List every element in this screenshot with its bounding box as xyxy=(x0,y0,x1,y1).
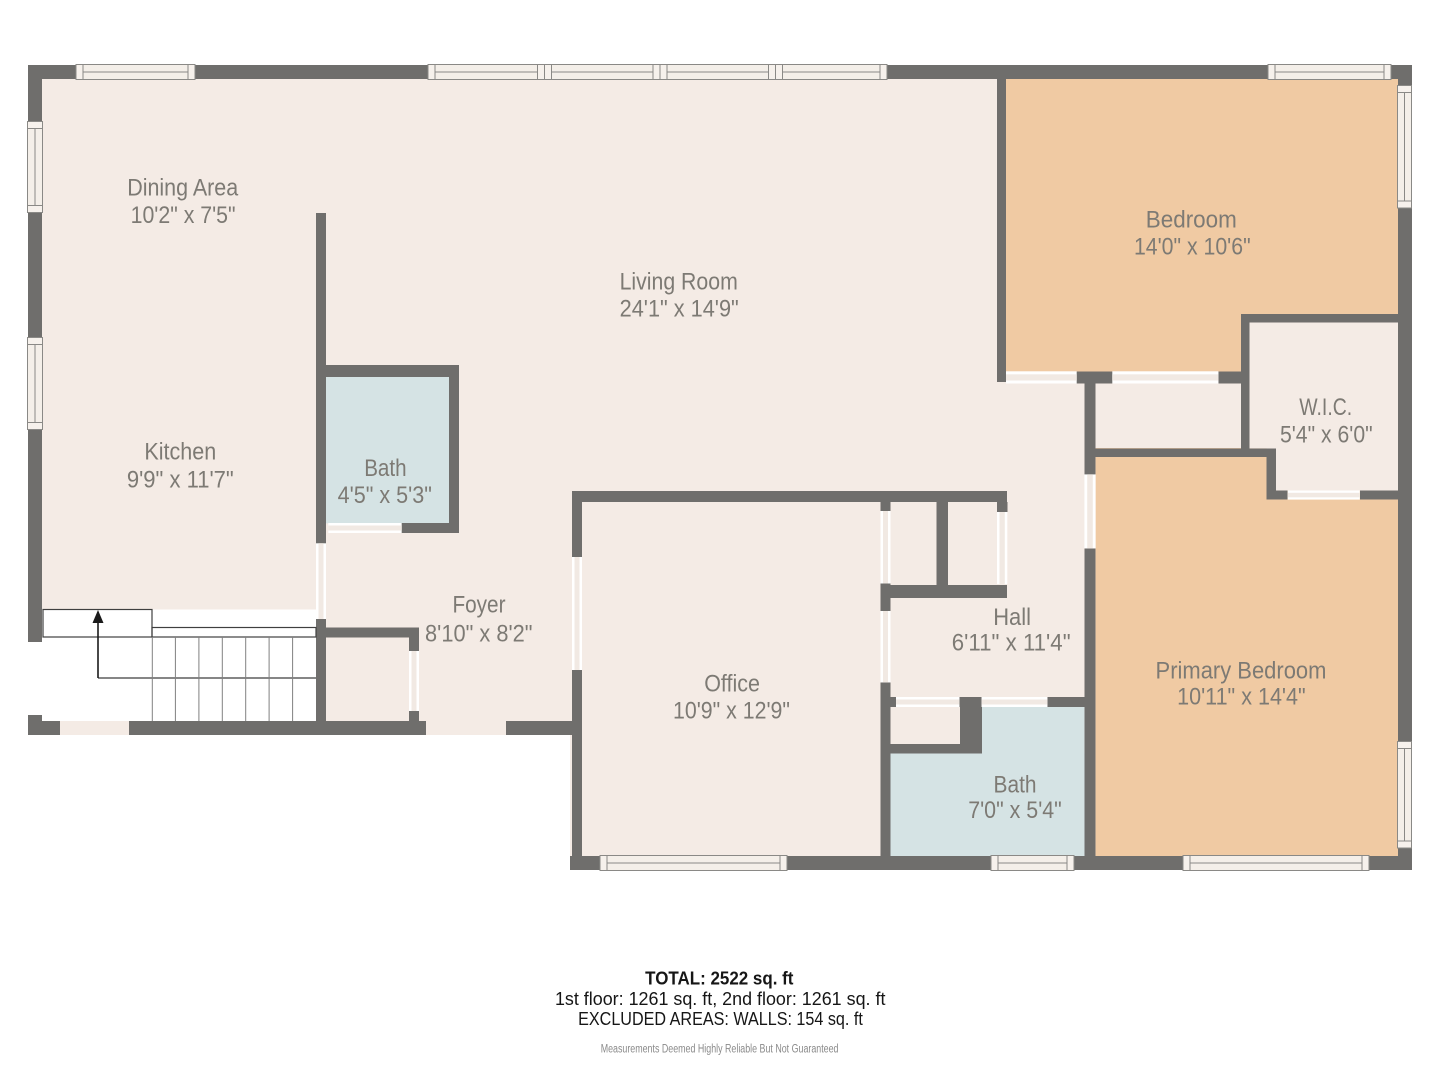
svg-text:Primary Bedroom: Primary Bedroom xyxy=(1156,658,1327,685)
svg-text:Bedroom: Bedroom xyxy=(1146,207,1237,234)
svg-text:Measurements Deemed Highly Rel: Measurements Deemed Highly Reliable But … xyxy=(601,1043,839,1055)
svg-text:Hall: Hall xyxy=(993,604,1031,631)
svg-text:Kitchen: Kitchen xyxy=(144,438,216,465)
svg-text:1st floor: 1261 sq. ft, 2nd fl: 1st floor: 1261 sq. ft, 2nd floor: 1261 … xyxy=(555,988,886,1009)
svg-text:TOTAL: 2522 sq. ft: TOTAL: 2522 sq. ft xyxy=(645,968,793,989)
svg-text:8'10" x 8'2": 8'10" x 8'2" xyxy=(425,620,533,647)
svg-text:24'1" x 14'9": 24'1" x 14'9" xyxy=(620,295,739,322)
svg-text:9'9" x 11'7": 9'9" x 11'7" xyxy=(127,467,234,494)
svg-text:10'2" x 7'5": 10'2" x 7'5" xyxy=(131,202,236,229)
svg-text:W.I.C.: W.I.C. xyxy=(1299,394,1352,421)
svg-text:6'11" x 11'4": 6'11" x 11'4" xyxy=(952,629,1071,656)
svg-text:Office: Office xyxy=(704,671,760,698)
svg-text:14'0" x 10'6": 14'0" x 10'6" xyxy=(1134,234,1251,261)
svg-text:Living Room: Living Room xyxy=(620,268,738,295)
svg-text:10'11" x 14'4": 10'11" x 14'4" xyxy=(1177,684,1306,711)
svg-text:5'4" x 6'0": 5'4" x 6'0" xyxy=(1280,422,1373,449)
svg-text:4'5" x 5'3": 4'5" x 5'3" xyxy=(338,482,432,509)
svg-text:EXCLUDED AREAS: WALLS: 154 sq.: EXCLUDED AREAS: WALLS: 154 sq. ft xyxy=(578,1008,863,1029)
svg-text:Bath: Bath xyxy=(364,455,406,482)
svg-text:7'0" x 5'4": 7'0" x 5'4" xyxy=(968,797,1062,824)
svg-text:Bath: Bath xyxy=(994,771,1037,798)
svg-text:Dining Area: Dining Area xyxy=(127,174,238,201)
svg-text:10'9" x 12'9": 10'9" x 12'9" xyxy=(673,697,790,724)
svg-text:Foyer: Foyer xyxy=(452,591,505,618)
